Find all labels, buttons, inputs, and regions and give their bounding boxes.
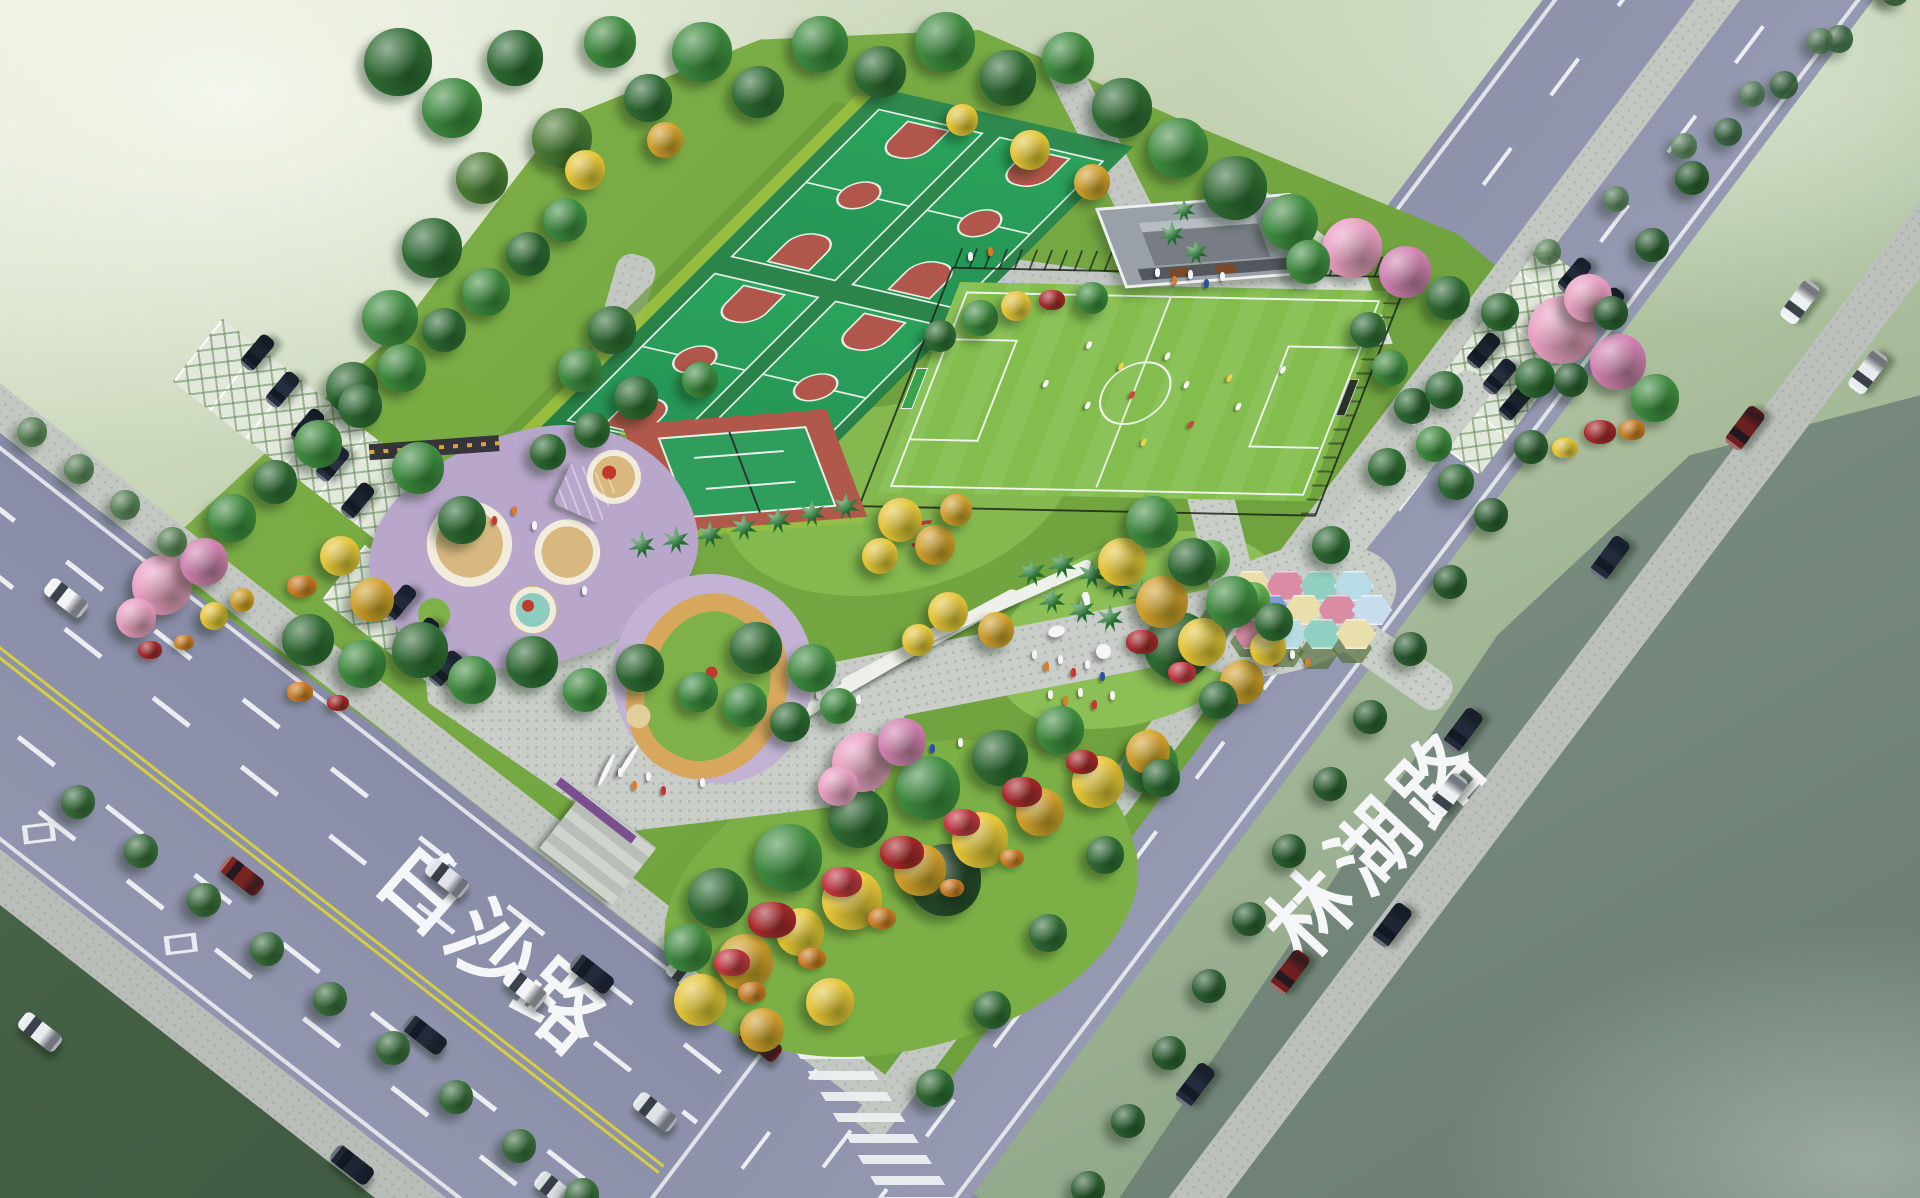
tree	[350, 578, 394, 622]
tree	[1350, 312, 1386, 348]
palm-tree	[1172, 198, 1196, 222]
flower-shrub	[940, 879, 964, 897]
tree	[730, 622, 782, 674]
tree	[915, 12, 975, 72]
tree	[1368, 448, 1406, 486]
tree	[230, 588, 254, 612]
tree	[647, 122, 683, 158]
tree	[788, 644, 836, 692]
palm-tree	[628, 531, 656, 559]
tree	[820, 688, 856, 724]
tree	[854, 46, 906, 98]
palm-tree	[1068, 596, 1096, 624]
tree	[1671, 133, 1697, 159]
tree	[1438, 464, 1474, 500]
flower-shrub	[1002, 777, 1042, 807]
tree	[448, 656, 496, 704]
tree	[1098, 538, 1146, 586]
flower-shrub	[714, 949, 750, 976]
tree	[208, 494, 256, 542]
tree	[392, 442, 444, 494]
tree	[878, 718, 926, 766]
tree	[1322, 218, 1382, 278]
tree	[1714, 118, 1742, 146]
tree	[678, 672, 718, 712]
tree	[378, 344, 426, 392]
flower-shrub	[1552, 438, 1578, 458]
tree	[1178, 618, 1226, 666]
palm-tree	[1183, 239, 1209, 265]
flower-shrub	[822, 867, 862, 897]
tree	[282, 614, 334, 666]
tree	[664, 924, 712, 972]
tree	[1092, 78, 1152, 138]
tree	[674, 974, 726, 1026]
tree	[1416, 426, 1452, 462]
flower-shrub	[944, 809, 980, 836]
tree	[1036, 706, 1084, 754]
tree	[915, 525, 955, 565]
tree	[543, 198, 587, 242]
tree	[806, 978, 854, 1026]
tree	[1142, 759, 1180, 797]
tree	[1631, 374, 1679, 422]
tree	[1086, 836, 1124, 874]
tree	[17, 417, 47, 447]
tree	[1425, 371, 1463, 409]
tree	[878, 498, 922, 542]
tree	[362, 290, 418, 346]
tree	[928, 592, 968, 632]
tree	[1515, 358, 1555, 398]
flower-shrub	[738, 982, 766, 1003]
tree	[770, 702, 810, 742]
tree	[1433, 565, 1467, 599]
tree	[1148, 118, 1208, 178]
tree	[565, 1178, 599, 1198]
palm-tree	[1159, 221, 1185, 247]
tree	[1199, 681, 1237, 719]
tree	[1514, 430, 1548, 464]
tree	[1232, 902, 1266, 936]
flower-shrub	[138, 641, 162, 659]
tree	[723, 683, 767, 727]
tree	[180, 538, 228, 586]
tree	[1474, 498, 1508, 532]
tree	[1076, 282, 1108, 314]
tree	[462, 268, 510, 316]
tree	[506, 636, 558, 688]
tree	[754, 824, 822, 892]
trees-layer	[0, 0, 1920, 1198]
tree	[456, 152, 508, 204]
flower-shrub	[287, 682, 313, 702]
tree	[1739, 81, 1765, 107]
tree	[688, 868, 748, 928]
flower-shrub	[287, 575, 317, 598]
tree	[187, 883, 221, 917]
tree	[1372, 350, 1408, 386]
tree	[614, 376, 658, 420]
tree	[924, 320, 956, 352]
palm-tree	[1017, 557, 1047, 587]
tree	[1001, 291, 1031, 321]
tree	[116, 598, 156, 638]
tree	[392, 622, 448, 678]
tree	[1071, 1171, 1105, 1198]
flower-shrub	[1619, 420, 1645, 440]
tree	[1192, 969, 1226, 1003]
flower-shrub	[868, 908, 896, 929]
palm-tree	[798, 499, 826, 527]
flower-shrub	[1000, 849, 1024, 867]
tree	[563, 668, 607, 712]
tree	[672, 22, 732, 82]
palm-tree	[1038, 586, 1066, 614]
tree	[902, 624, 934, 656]
tree	[616, 644, 664, 692]
tree	[1535, 239, 1561, 265]
flower-shrub	[1168, 662, 1196, 683]
palm-tree	[1047, 549, 1077, 579]
tree	[558, 348, 602, 392]
tree	[1675, 161, 1709, 195]
tree	[1594, 296, 1628, 330]
tree	[376, 1031, 410, 1065]
tree	[1042, 32, 1094, 84]
tree	[682, 362, 718, 398]
tree	[624, 74, 672, 122]
tree	[574, 412, 610, 448]
flower-shrub	[1584, 420, 1616, 444]
flower-shrub	[174, 635, 194, 650]
tree	[61, 785, 95, 819]
tree	[530, 434, 566, 470]
palm-tree	[832, 492, 860, 520]
tree	[978, 612, 1014, 648]
tree	[250, 932, 284, 966]
tree	[1272, 834, 1306, 868]
tree	[1074, 164, 1110, 200]
tree	[584, 16, 636, 68]
flower-shrub	[748, 902, 796, 938]
tree	[64, 454, 94, 484]
tree	[973, 991, 1011, 1029]
tree	[1353, 700, 1387, 734]
tree	[862, 538, 898, 574]
tree	[1379, 246, 1431, 298]
tree	[1206, 576, 1258, 628]
flower-shrub	[1126, 630, 1158, 654]
flower-shrub	[327, 695, 349, 712]
flower-shrub	[1039, 290, 1065, 310]
tree	[940, 494, 972, 526]
tree	[200, 602, 228, 630]
tree	[962, 300, 998, 336]
tree	[1635, 228, 1669, 262]
tree	[438, 496, 486, 544]
tree	[588, 306, 636, 354]
tree	[1029, 914, 1067, 952]
tree	[1010, 130, 1050, 170]
tree	[732, 66, 784, 118]
tree	[792, 16, 848, 72]
tree	[1286, 240, 1330, 284]
flower-shrub	[1066, 750, 1098, 774]
tree	[338, 384, 382, 428]
tree	[338, 640, 386, 688]
tree	[1136, 576, 1188, 628]
tree	[1152, 1036, 1186, 1070]
palm-tree	[696, 520, 724, 548]
tree	[253, 460, 297, 504]
tree	[110, 490, 140, 520]
palm-tree	[662, 526, 690, 554]
tree	[294, 420, 342, 468]
tree	[487, 30, 543, 86]
tree	[439, 1080, 473, 1114]
tree	[124, 834, 158, 868]
flower-shrub	[798, 948, 826, 969]
tree	[1481, 293, 1519, 331]
tree	[1168, 538, 1216, 586]
tree	[1807, 28, 1833, 54]
palm-tree	[764, 506, 792, 534]
tree	[313, 982, 347, 1016]
tree	[1126, 496, 1178, 548]
tree	[402, 218, 462, 278]
tree	[422, 78, 482, 138]
tree	[818, 766, 858, 806]
tree	[565, 150, 605, 190]
park-aerial-rendering: 白沙路 林湖路	[0, 0, 1920, 1198]
tree	[1255, 603, 1293, 641]
tree	[1426, 276, 1470, 320]
tree	[740, 1008, 784, 1052]
flower-shrub	[880, 836, 924, 869]
tree	[1203, 156, 1267, 220]
tree	[1111, 1104, 1145, 1138]
tree	[422, 308, 466, 352]
tree	[1554, 363, 1588, 397]
tree	[1313, 767, 1347, 801]
palm-tree	[1096, 604, 1124, 632]
tree	[157, 527, 187, 557]
tree	[916, 1069, 954, 1107]
tree	[502, 1129, 536, 1163]
tree	[506, 232, 550, 276]
tree	[980, 50, 1036, 106]
palm-tree	[730, 513, 758, 541]
tree	[946, 104, 978, 136]
tree	[320, 536, 360, 576]
tree	[1770, 71, 1798, 99]
tree	[1312, 526, 1350, 564]
tree	[1393, 632, 1427, 666]
tree	[364, 28, 432, 96]
tree	[1603, 186, 1629, 212]
